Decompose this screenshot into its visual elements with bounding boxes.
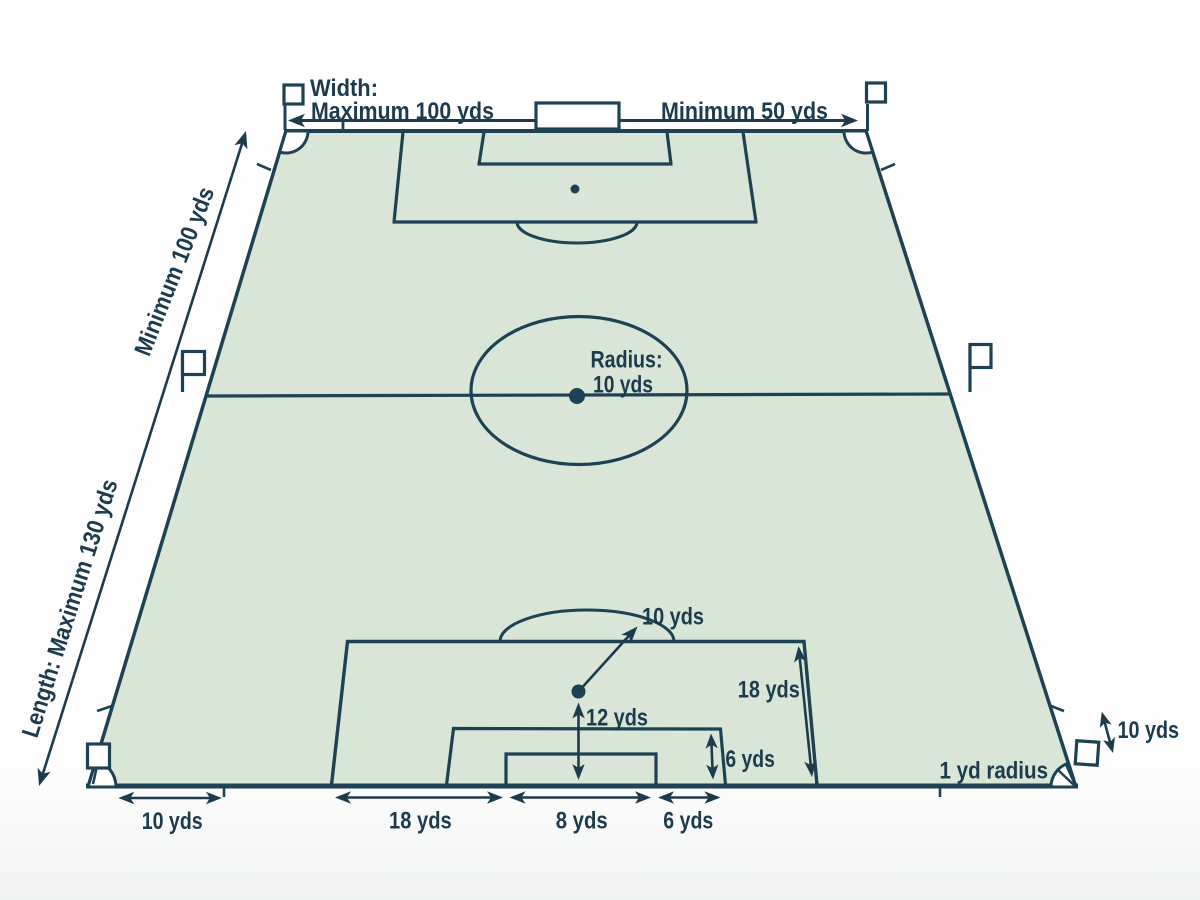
svg-text:18 yds: 18 yds [738,677,800,704]
svg-text:10 yds: 10 yds [642,604,704,631]
svg-text:8 yds: 8 yds [556,808,608,835]
svg-text:Minimum 50 yds: Minimum 50 yds [661,98,828,125]
svg-text:10 yds: 10 yds [142,808,203,835]
svg-text:6 yds: 6 yds [663,808,713,835]
svg-text:Maximum 100 yds: Maximum 100 yds [311,98,494,125]
svg-text:10 yds: 10 yds [1118,717,1180,744]
svg-text:1 yd radius: 1 yd radius [940,758,1049,785]
svg-text:12 yds: 12 yds [586,705,648,732]
svg-text:10 yds: 10 yds [593,372,653,399]
svg-text:6 yds: 6 yds [725,746,775,773]
svg-text:Radius:: Radius: [591,347,663,374]
svg-text:18 yds: 18 yds [389,808,452,835]
